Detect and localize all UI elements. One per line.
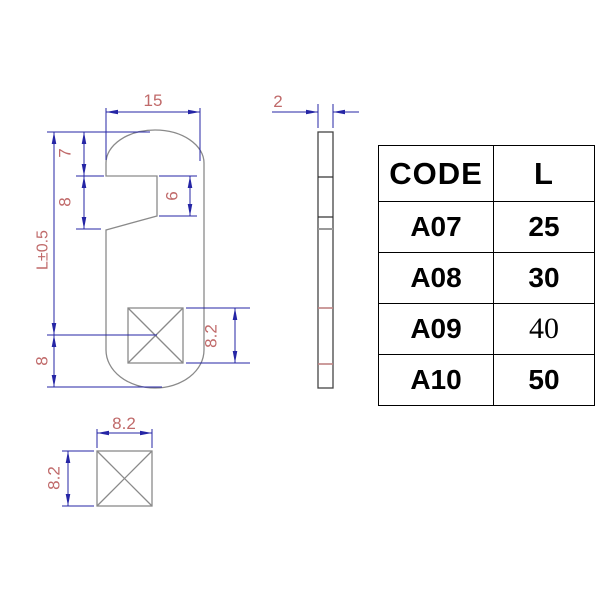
dimension-pad-side (62, 451, 94, 506)
dimension-width (106, 108, 200, 161)
length-value: 30 (528, 262, 559, 293)
dim-label-hook-top: 7 (56, 148, 75, 157)
table-row: A07 25 (379, 202, 595, 253)
dimension-bottom (47, 335, 162, 387)
dimension-thickness (272, 104, 359, 128)
size-table: CODE L A07 25 A08 30 A09 (378, 145, 595, 406)
dimension-length (47, 132, 157, 335)
table-cell-length: 50 (494, 355, 595, 406)
length-value: 40 (529, 312, 559, 345)
side-strip-outline (318, 132, 333, 388)
dim-label-pad-width: 8.2 (112, 414, 136, 433)
table-header-code: CODE (379, 146, 494, 202)
hook-plate-outline (106, 130, 204, 388)
table-header-length: L (494, 146, 595, 202)
dim-label-hook-mouth: 8 (56, 197, 75, 206)
length-value: 25 (528, 211, 559, 242)
table-cell-code: A09 (379, 304, 494, 355)
table-header-row: CODE L (379, 146, 595, 202)
table-row: A09 40 (379, 304, 595, 355)
dim-label-width: 15 (144, 91, 163, 110)
side-view (318, 132, 333, 388)
detail-view (97, 451, 152, 506)
header-code-label: CODE (389, 156, 483, 191)
dim-label-thickness: 2 (273, 92, 282, 111)
table-cell-length: 30 (494, 253, 595, 304)
code-value: A10 (410, 364, 461, 395)
dim-label-bottom: 8 (33, 356, 52, 365)
dim-label-pad-side: 8.2 (45, 466, 64, 490)
dimension-hook-mouth (76, 176, 101, 229)
header-length-label: L (534, 156, 554, 191)
table-row: A08 30 (379, 253, 595, 304)
dimension-hook-top (76, 132, 104, 176)
table-cell-code: A10 (379, 355, 494, 406)
table-cell-code: A08 (379, 253, 494, 304)
length-value: 50 (528, 364, 559, 395)
table-row: A10 50 (379, 355, 595, 406)
table-cell-code: A07 (379, 202, 494, 253)
dim-label-length: L±0.5 (35, 230, 52, 270)
dim-label-pad-height: 8.2 (202, 324, 221, 348)
dim-label-slot: 6 (163, 191, 182, 200)
engineering-drawing-page: 15 7 8 6 L±0.5 8 8.2 2 (0, 0, 610, 610)
table-cell-length: 40 (494, 304, 595, 355)
front-view (106, 130, 204, 388)
detail-view-dimensions (62, 429, 152, 506)
table-cell-length: 25 (494, 202, 595, 253)
code-value: A09 (410, 313, 461, 344)
code-value: A08 (410, 262, 461, 293)
code-value: A07 (410, 211, 461, 242)
